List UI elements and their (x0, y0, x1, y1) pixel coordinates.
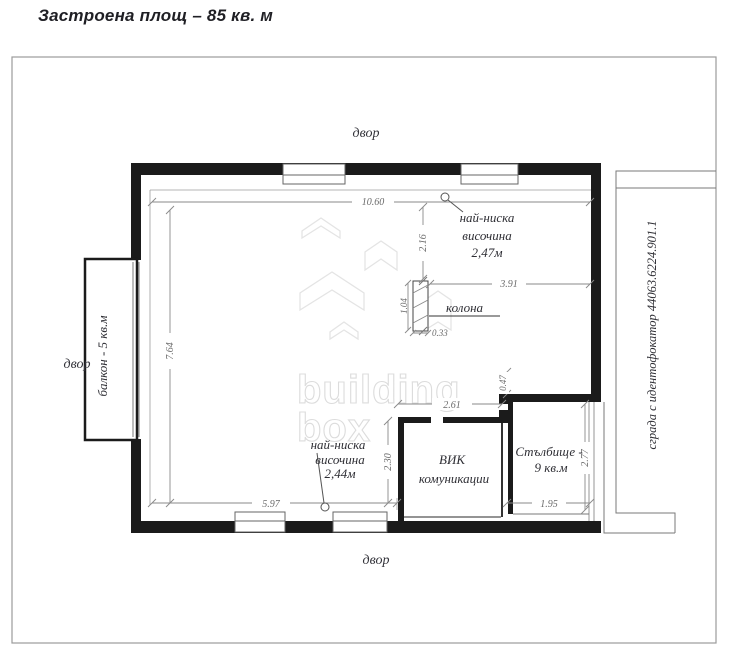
watermark-chevron-icon (365, 241, 397, 270)
dim-vik-height: 2.30 (383, 453, 394, 471)
min-height-top-line2: височина (462, 228, 512, 243)
wall-vik-top-b (443, 417, 505, 423)
neighbor-outline-path (616, 171, 716, 533)
dim-column-height: 1.04 (399, 298, 409, 314)
interior-face-lines (150, 190, 592, 510)
wall-left-upper (131, 163, 141, 260)
column-rect (413, 281, 428, 331)
window-top-2 (461, 164, 518, 184)
dim-column-width: 0.33 (432, 328, 448, 338)
window-bottom-1 (235, 512, 285, 532)
min-height-top-value: 2,47м (471, 245, 502, 260)
min-height-bottom-value: 2,44м (324, 466, 355, 481)
min-height-annotation-top: най-ниска височина 2,47м (441, 193, 515, 260)
stairs-label-line1: Стълбище - (515, 444, 582, 459)
watermark-chevron-icon (302, 218, 340, 238)
yard-label-left: двор (64, 357, 91, 372)
column-symbol: колона (413, 277, 500, 335)
dim-left-height: 7.64 (165, 342, 176, 360)
balcony-outline (85, 259, 137, 440)
vik-room-label-line1: ВИК (439, 452, 466, 467)
floor-plan-page: Застроена площ – 85 кв. м building box (0, 0, 730, 651)
min-height-bottom-line2: височина (315, 452, 365, 467)
watermark-chevron-icon (300, 272, 364, 310)
dim-bottom-width: 5.97 (262, 499, 281, 510)
yard-label-top: двор (353, 126, 380, 141)
neighbor-building-label: сграда с идентофокатор 44063.6224.901.1 (645, 220, 659, 449)
balcony (85, 259, 139, 440)
dim-column-drop: 2.16 (418, 234, 429, 252)
window-bottom-2 (333, 512, 387, 532)
neighbor-building-outline (604, 171, 716, 533)
dim-stairs-width: 1.95 (540, 499, 558, 510)
dim-top-width: 10.60 (362, 197, 385, 208)
window-top-1 (283, 164, 345, 184)
vik-room-label-line2: комуникации (419, 471, 490, 486)
min-height-annotation-bottom: най-ниска височина 2,44м (311, 437, 366, 511)
dimension-lines (148, 198, 594, 514)
building-walls (131, 163, 601, 533)
leader-point-icon (441, 193, 449, 201)
wall-vik-top-a (398, 417, 431, 423)
wall-right (591, 163, 601, 402)
dim-right-span: 3.91 (499, 279, 518, 290)
stairs-label-line2: 9 кв.м (534, 460, 567, 475)
wall-top (131, 163, 601, 175)
balcony-label: балкон - 5 кв.м (95, 315, 110, 396)
yard-label-bottom: двор (363, 553, 390, 568)
column-label: колона (446, 300, 484, 315)
leader-point-icon (321, 503, 329, 511)
dim-vik-width: 2.61 (443, 400, 461, 411)
wall-stairs-top (509, 394, 601, 402)
min-height-top-line1: най-ниска (460, 210, 515, 225)
wall-left-lower (131, 439, 141, 533)
wall-stub-b (499, 410, 509, 423)
dim-stub-height: 0.47 (498, 375, 508, 391)
wall-vik-left (398, 417, 404, 521)
floor-plan-drawing: building box (0, 0, 730, 651)
watermark-chevron-icon (330, 322, 358, 339)
min-height-bottom-line1: най-ниска (311, 437, 366, 452)
